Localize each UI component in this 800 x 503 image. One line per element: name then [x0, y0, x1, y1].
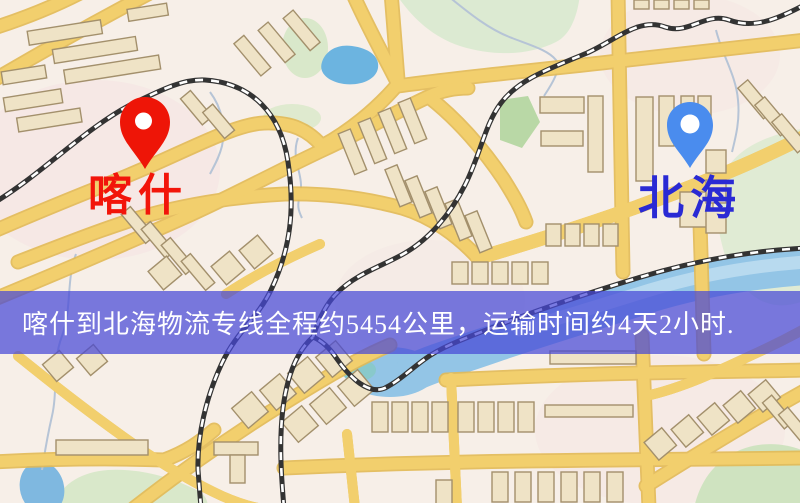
origin-pin-hole — [135, 113, 152, 130]
logistics-route-map-image: 喀什 北海 喀什到北海物流专线全程约5454公里，运输时间约4天2小时. — [0, 0, 800, 503]
origin-city-label: 喀什 — [88, 174, 188, 218]
route-info-banner: 喀什到北海物流专线全程约5454公里，运输时间约4天2小时. — [0, 291, 800, 354]
destination-pin-hole — [681, 115, 700, 134]
destination-city-label: 北海 — [638, 176, 742, 222]
route-info-text: 喀什到北海物流专线全程约5454公里，运输时间约4天2小时. — [22, 304, 735, 341]
map-background — [0, 0, 800, 503]
